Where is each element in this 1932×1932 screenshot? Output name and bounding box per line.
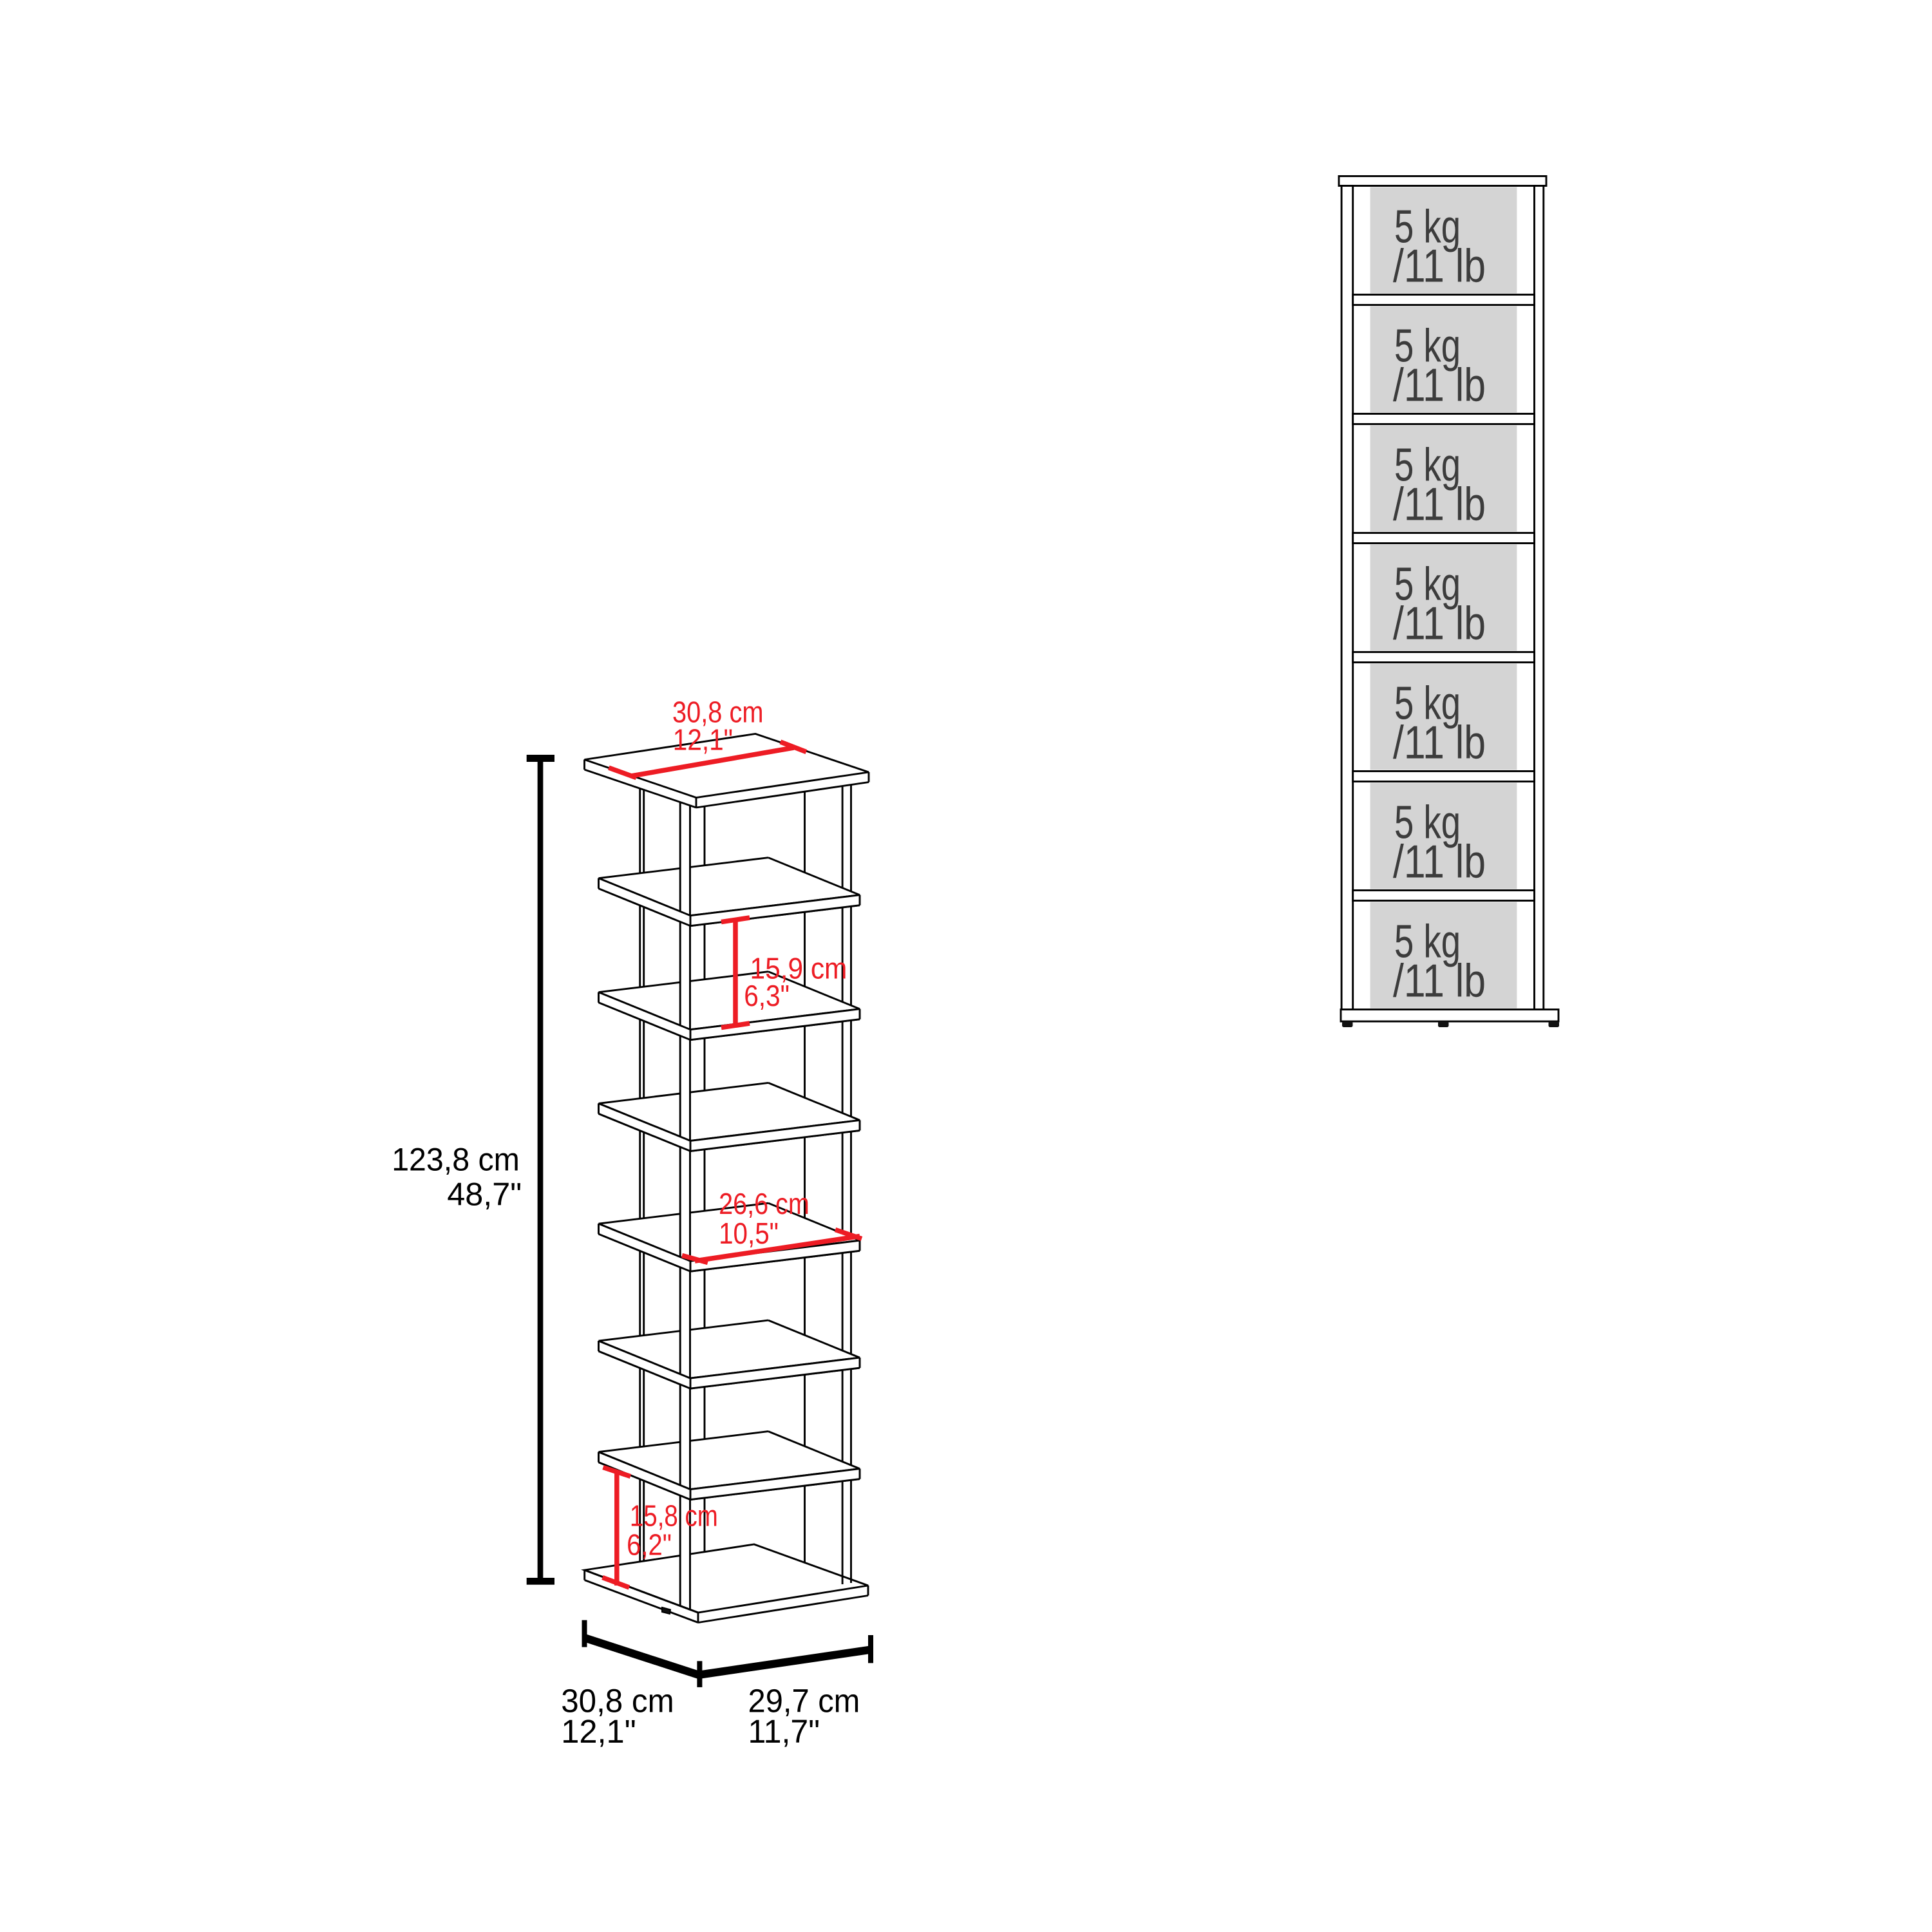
svg-text:/11 lb: /11 lb [1393,478,1486,530]
svg-text:6,2": 6,2" [627,1528,672,1562]
svg-text:/11 lb: /11 lb [1393,717,1486,768]
svg-text:/11 lb: /11 lb [1393,240,1486,292]
svg-text:12,1": 12,1" [673,723,733,756]
svg-text:48,7": 48,7" [447,1176,522,1212]
svg-text:/11 lb: /11 lb [1393,598,1486,649]
svg-text:10,5": 10,5" [719,1217,779,1250]
svg-text:26,6 cm: 26,6 cm [719,1187,810,1220]
svg-text:123,8 cm: 123,8 cm [392,1142,520,1178]
svg-text:/11 lb: /11 lb [1393,955,1486,1007]
svg-text:6,3": 6,3" [744,979,790,1012]
svg-text:12,1": 12,1" [561,1713,636,1750]
svg-text:/11 lb: /11 lb [1393,836,1486,887]
svg-text:/11 lb: /11 lb [1393,359,1486,411]
svg-text:11,7": 11,7" [748,1713,820,1750]
